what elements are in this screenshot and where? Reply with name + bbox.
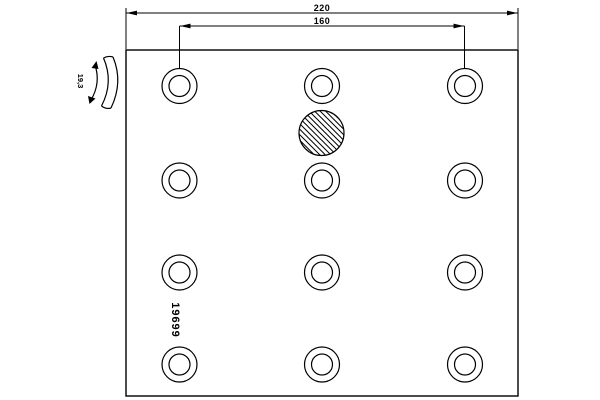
rivet-hole-inner bbox=[169, 170, 190, 191]
rivet-hole-inner bbox=[312, 262, 333, 283]
arrowhead-left-icon bbox=[180, 24, 191, 29]
curvature-symbol bbox=[88, 56, 118, 108]
profile-cap-top bbox=[104, 56, 114, 58]
rivet-hole-inner bbox=[169, 76, 190, 97]
lining-profile-arc-inner bbox=[111, 57, 118, 108]
rivet-hole-inner bbox=[455, 76, 476, 97]
arrowhead-up-icon bbox=[92, 61, 99, 69]
thickness-label: 19,3 bbox=[76, 74, 85, 89]
rivet-hole-inner bbox=[455, 262, 476, 283]
part-number-label: 19699 bbox=[169, 302, 181, 338]
technical-drawing: 220 160 19,3 19699 bbox=[0, 0, 600, 400]
rivet-hole-inner bbox=[169, 354, 190, 375]
rivet-hole-inner bbox=[455, 170, 476, 191]
arrowhead-right-icon bbox=[454, 24, 465, 29]
dimension-220-label: 220 bbox=[314, 3, 331, 13]
drawing-canvas: 220 160 19,3 19699 bbox=[0, 0, 600, 400]
rivet-hole-inner bbox=[312, 170, 333, 191]
rivet-hole-inner bbox=[312, 354, 333, 375]
curvature-arrow-icon bbox=[91, 65, 97, 100]
arrowhead-left-icon bbox=[127, 11, 138, 16]
rivet-hole-inner bbox=[169, 262, 190, 283]
arrowhead-down-icon bbox=[88, 96, 96, 104]
profile-cap-bottom bbox=[102, 106, 112, 108]
lining-profile-arc-outer bbox=[102, 58, 109, 106]
dimension-160-label: 160 bbox=[314, 16, 331, 26]
rivet-hole-inner bbox=[455, 354, 476, 375]
rivet-hole-inner bbox=[312, 76, 333, 97]
hatched-hole bbox=[299, 111, 344, 156]
dimension-220 bbox=[126, 8, 518, 49]
arrowhead-right-icon bbox=[507, 11, 518, 16]
